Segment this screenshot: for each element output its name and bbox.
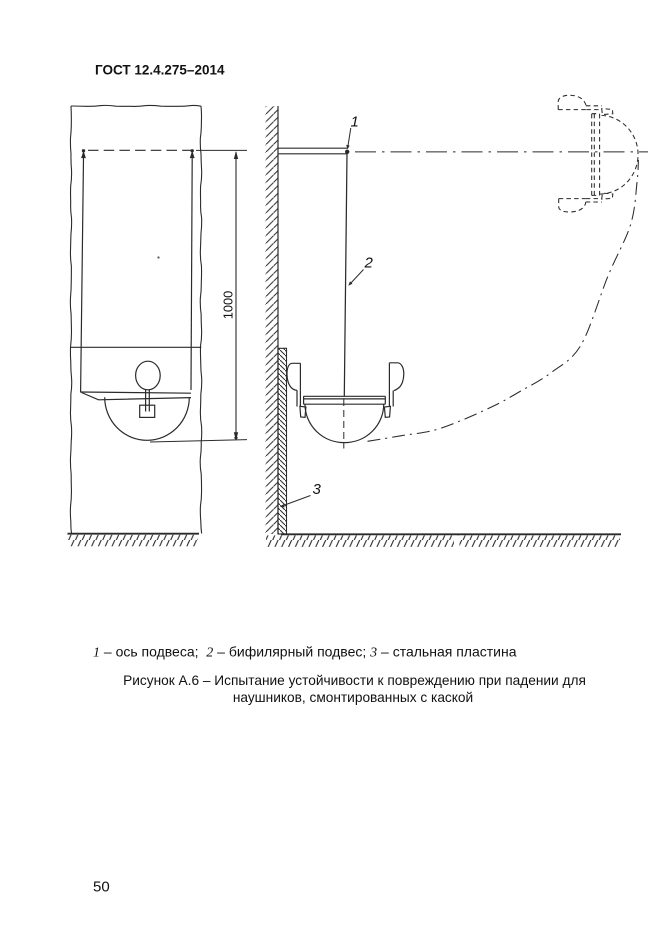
svg-text:3: 3 — [313, 481, 322, 498]
svg-text:Рисунок А.6 – Испытание устойч: Рисунок А.6 – Испытание устойчивости к п… — [123, 673, 586, 688]
svg-text:1000: 1000 — [221, 291, 236, 319]
svg-text:50: 50 — [93, 879, 110, 896]
svg-text:ГОСТ 12.4.275–2014: ГОСТ 12.4.275–2014 — [95, 63, 225, 78]
svg-text:1: 1 — [351, 114, 359, 131]
svg-text:наушников, смонтированных с ка: наушников, смонтированных с каской — [233, 690, 473, 705]
svg-text:1 – ось подвеса; 2 – бифилярн: 1 – ось подвеса; 2 – бифилярный подвес; … — [93, 644, 517, 661]
svg-text:2: 2 — [364, 254, 374, 271]
